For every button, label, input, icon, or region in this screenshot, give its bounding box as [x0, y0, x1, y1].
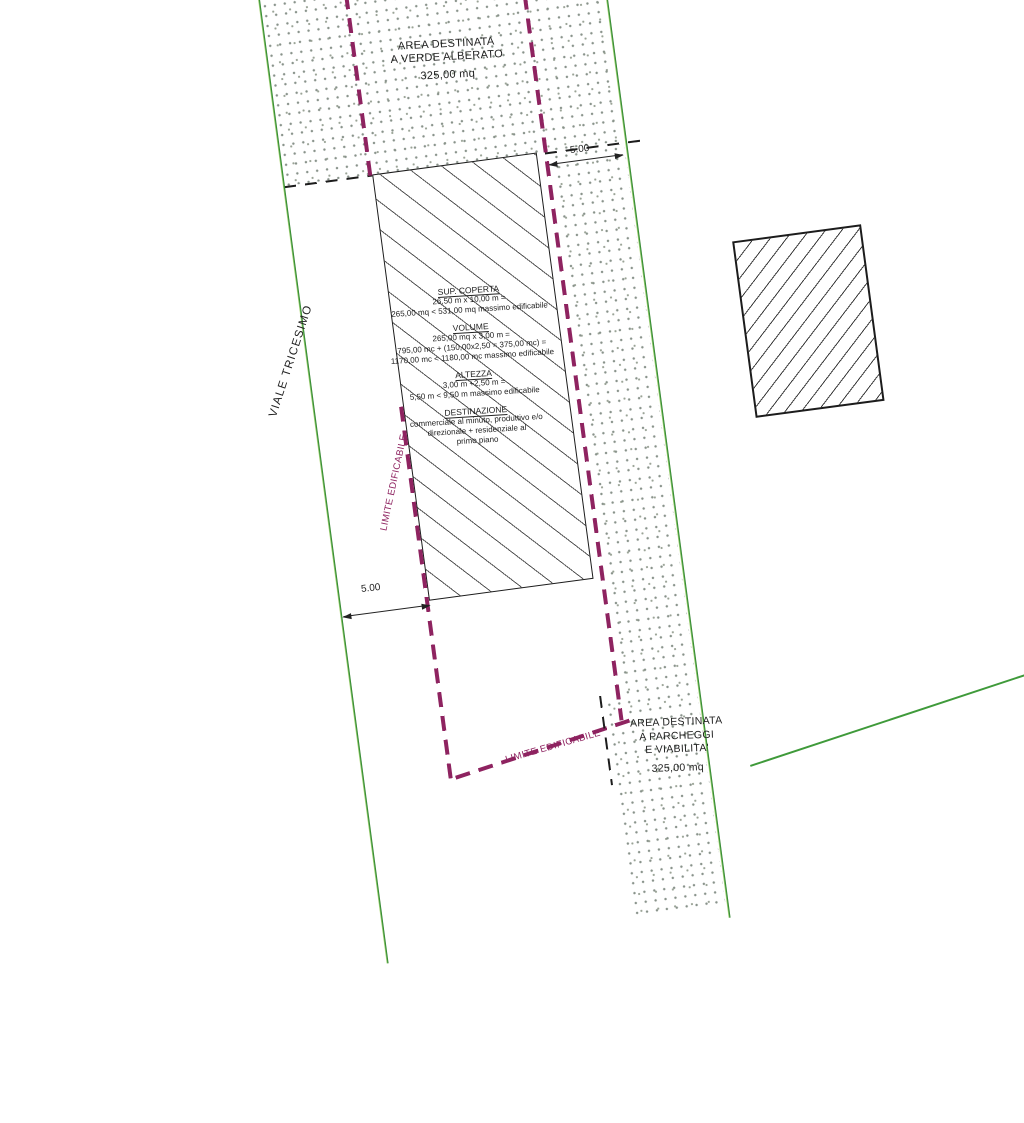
right-hatched-lot [732, 224, 884, 418]
dimension-value-left: 5.00 [360, 582, 381, 595]
buildable-specs: SUP. COPERTA 26,50 m x 10,00 m = 265,00 … [363, 279, 582, 453]
dimension-value-top: 5.00 [569, 143, 590, 156]
dimension-line-left [343, 605, 429, 617]
site-plan-drawing [0, 0, 1024, 1123]
site-plan-page: { "plan": { "verde_area": { "line1": "AR… [0, 0, 1024, 768]
